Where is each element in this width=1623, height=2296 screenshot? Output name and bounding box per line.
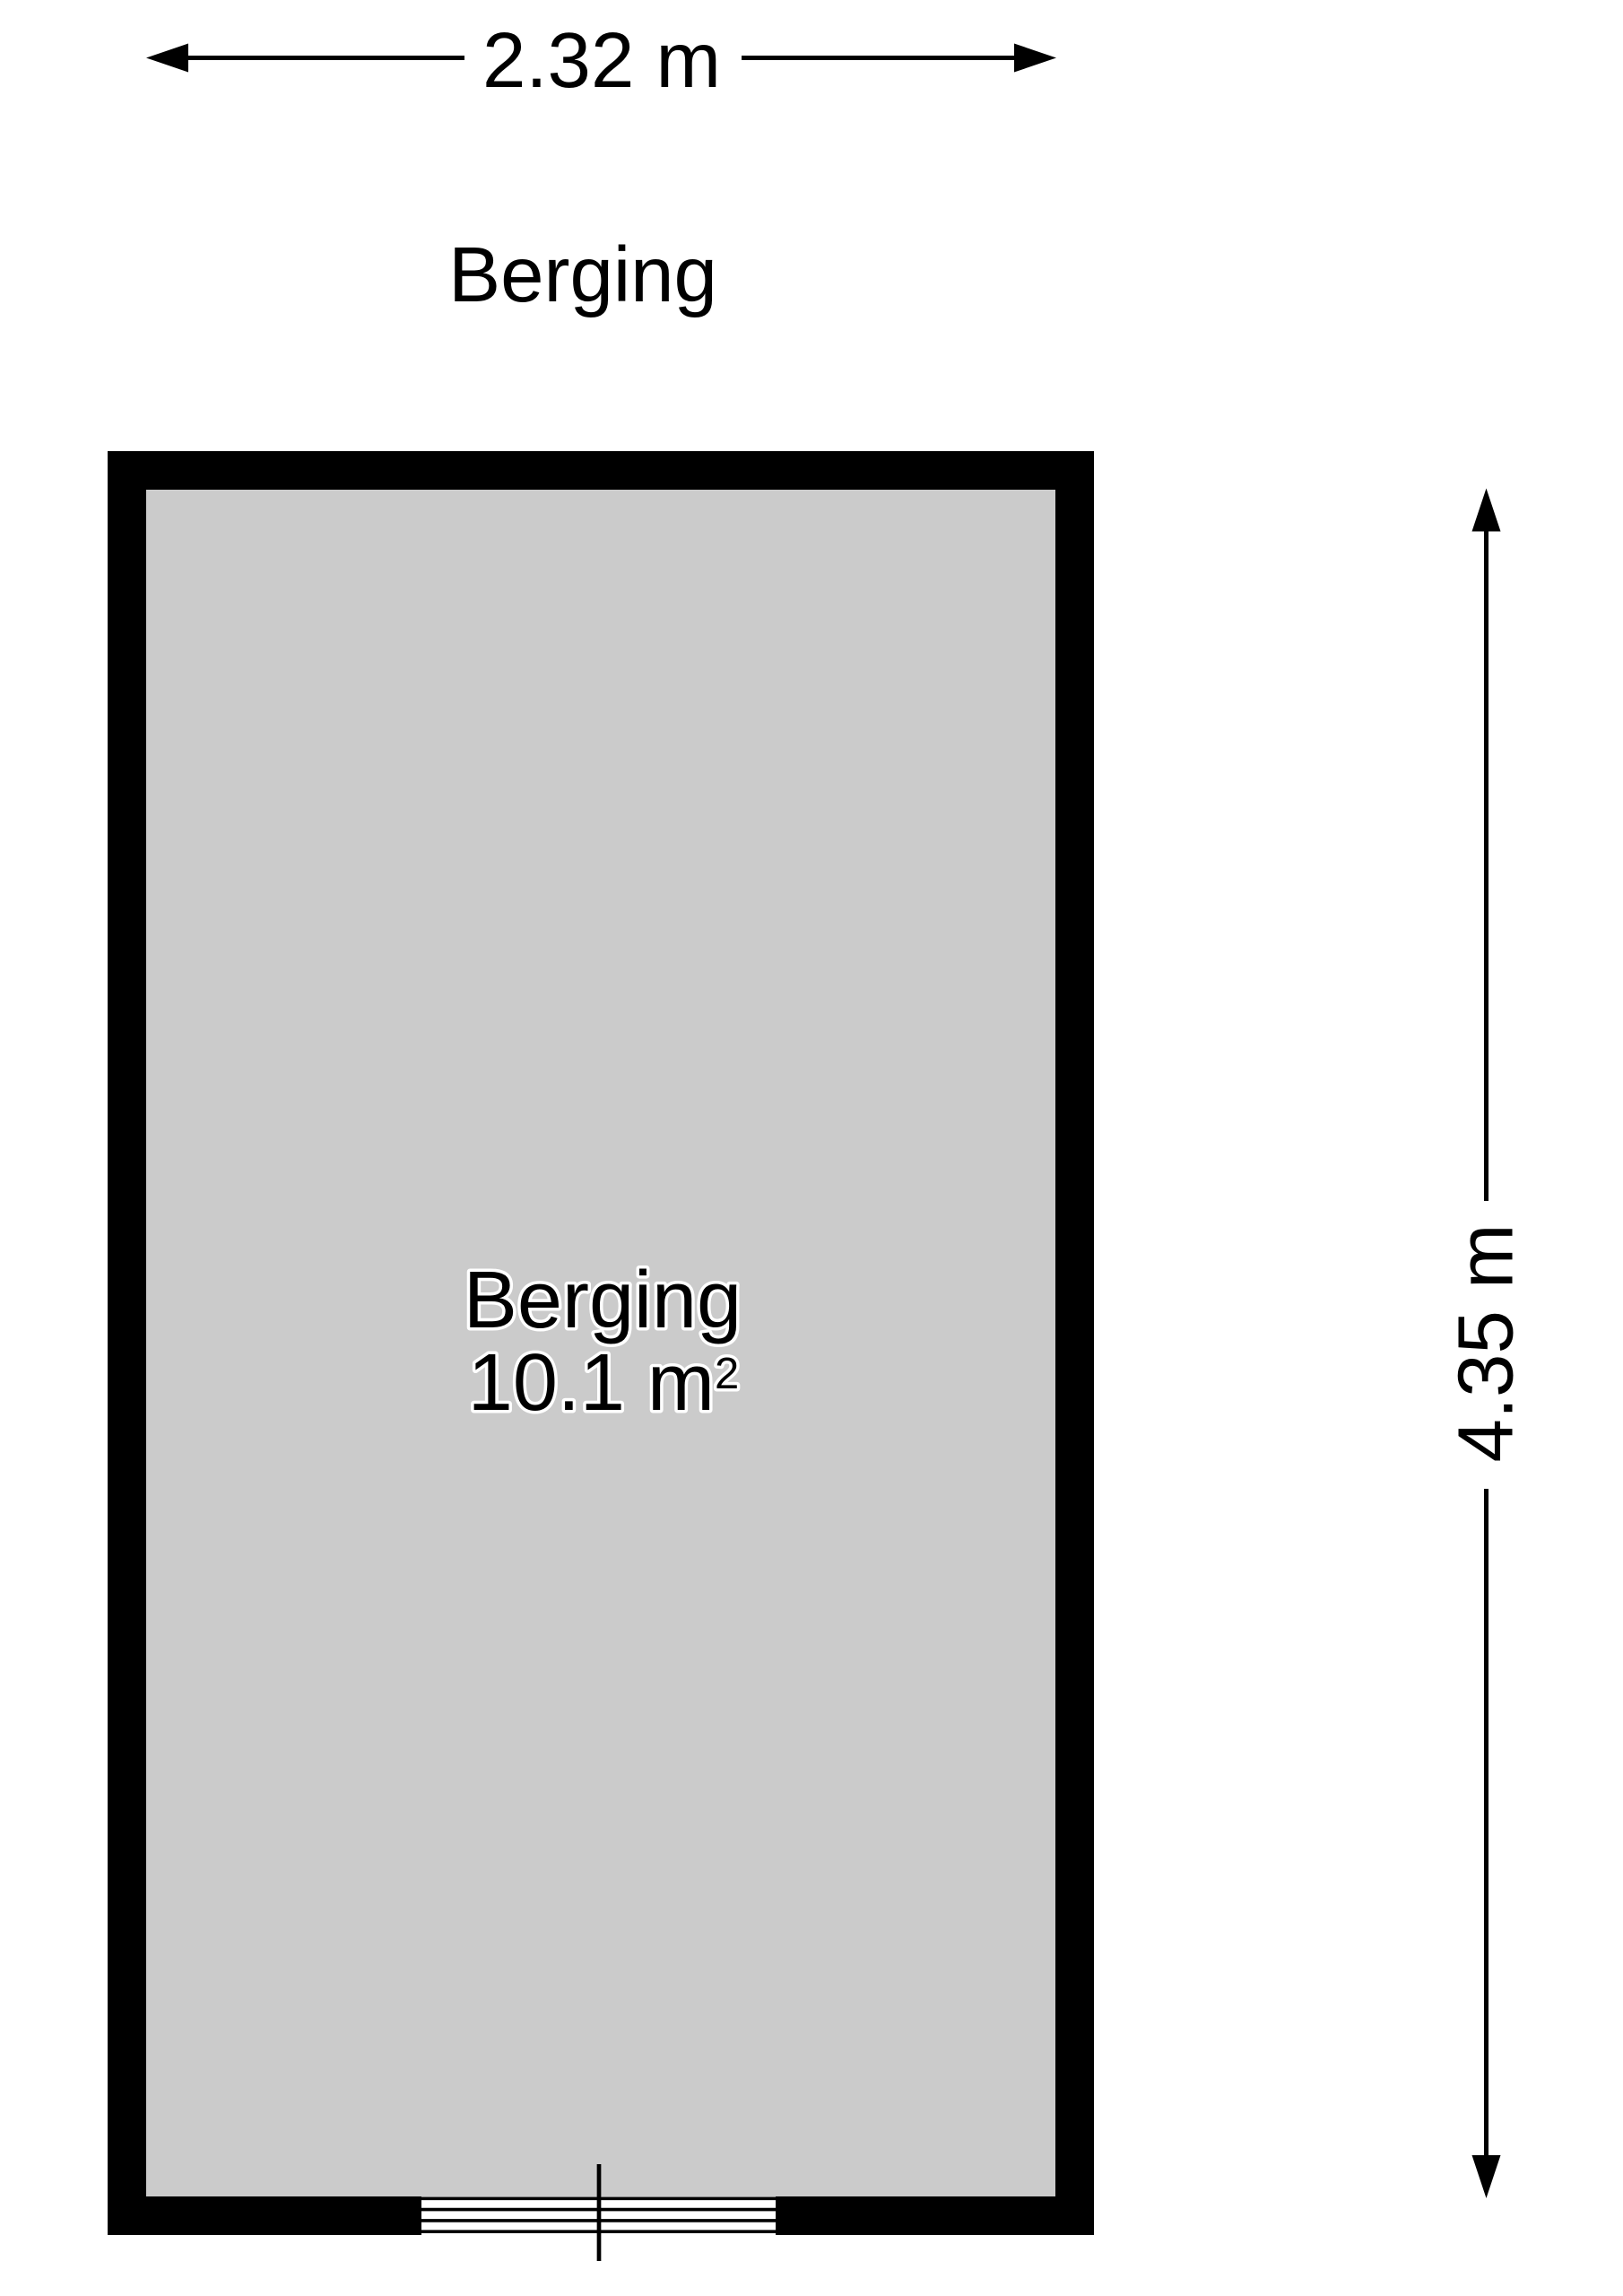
- svg-text:2.32 m: 2.32 m: [482, 17, 721, 104]
- svg-text:10.1 m2: 10.1 m2: [468, 1338, 739, 1428]
- svg-text:Berging: Berging: [448, 231, 717, 318]
- svg-text:4.35 m: 4.35 m: [1443, 1224, 1530, 1463]
- svg-text:Berging: Berging: [464, 1256, 742, 1345]
